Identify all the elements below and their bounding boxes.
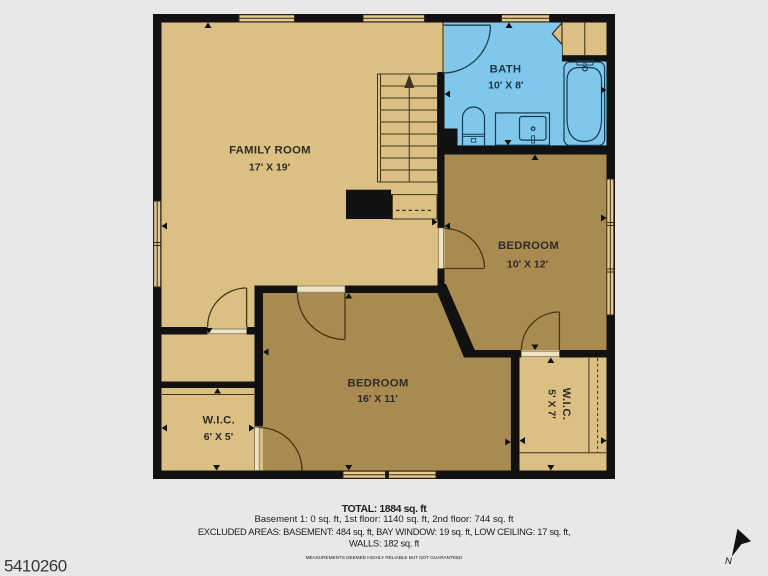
svg-text:10' X 8': 10' X 8' [488, 80, 523, 92]
svg-text:FAMILY ROOM: FAMILY ROOM [229, 145, 311, 157]
svg-text:EXCLUDED AREAS: BASEMENT: 484: EXCLUDED AREAS: BASEMENT: 484 sq. ft, BA… [198, 526, 570, 537]
svg-text:17' X 19': 17' X 19' [249, 161, 290, 173]
svg-text:Basement 1: 0 sq. ft, 1st floo: Basement 1: 0 sq. ft, 1st floor: 1140 sq… [254, 514, 513, 525]
svg-text:BEDROOM: BEDROOM [347, 377, 408, 389]
svg-text:5' X 7': 5' X 7' [546, 389, 558, 419]
svg-text:WALLS: 182 sq. ft: WALLS: 182 sq. ft [349, 538, 420, 549]
svg-text:BEDROOM: BEDROOM [498, 240, 559, 252]
svg-text:MEASUREMENTS DEEMED HIGHLY REL: MEASUREMENTS DEEMED HIGHLY RELIABLE BUT … [306, 555, 463, 561]
svg-text:16' X 11': 16' X 11' [357, 393, 398, 405]
svg-text:5410260: 5410260 [4, 557, 67, 576]
svg-text:N: N [725, 556, 732, 567]
svg-text:W.I.C.: W.I.C. [560, 388, 572, 421]
svg-text:BATH: BATH [490, 64, 522, 76]
svg-text:W.I.C.: W.I.C. [203, 415, 236, 427]
svg-text:6' X 5': 6' X 5' [204, 431, 234, 443]
svg-text:10' X 12': 10' X 12' [507, 259, 548, 271]
